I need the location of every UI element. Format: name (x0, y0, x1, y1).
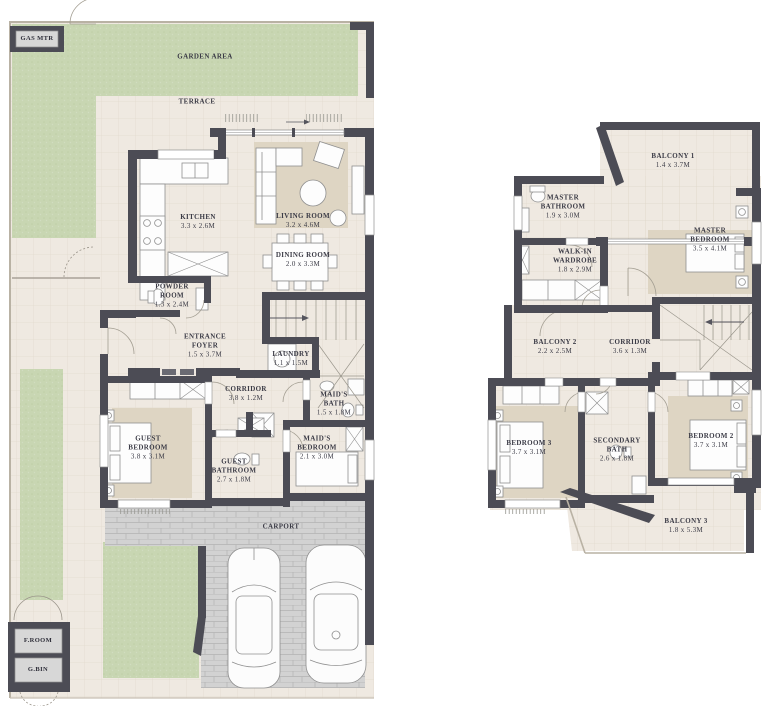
tv-unit (352, 166, 364, 214)
basin (632, 476, 646, 494)
floor-plan-canvas: GARDEN AREA TERRACE KITCHEN3.3 x 2.6M LI… (0, 0, 768, 706)
pouf (330, 210, 346, 226)
sofa (256, 148, 276, 224)
floor-plan-drawing (0, 0, 768, 706)
coffee-table (300, 180, 326, 206)
wardrobe-units (522, 280, 602, 300)
car-1 (228, 548, 280, 688)
car-2 (306, 545, 366, 683)
shower (348, 379, 364, 395)
sofa-chaise (276, 148, 302, 166)
dining-table (272, 243, 328, 281)
bed2-wardrobe (688, 380, 732, 396)
bed3-wardrobe (503, 386, 559, 404)
